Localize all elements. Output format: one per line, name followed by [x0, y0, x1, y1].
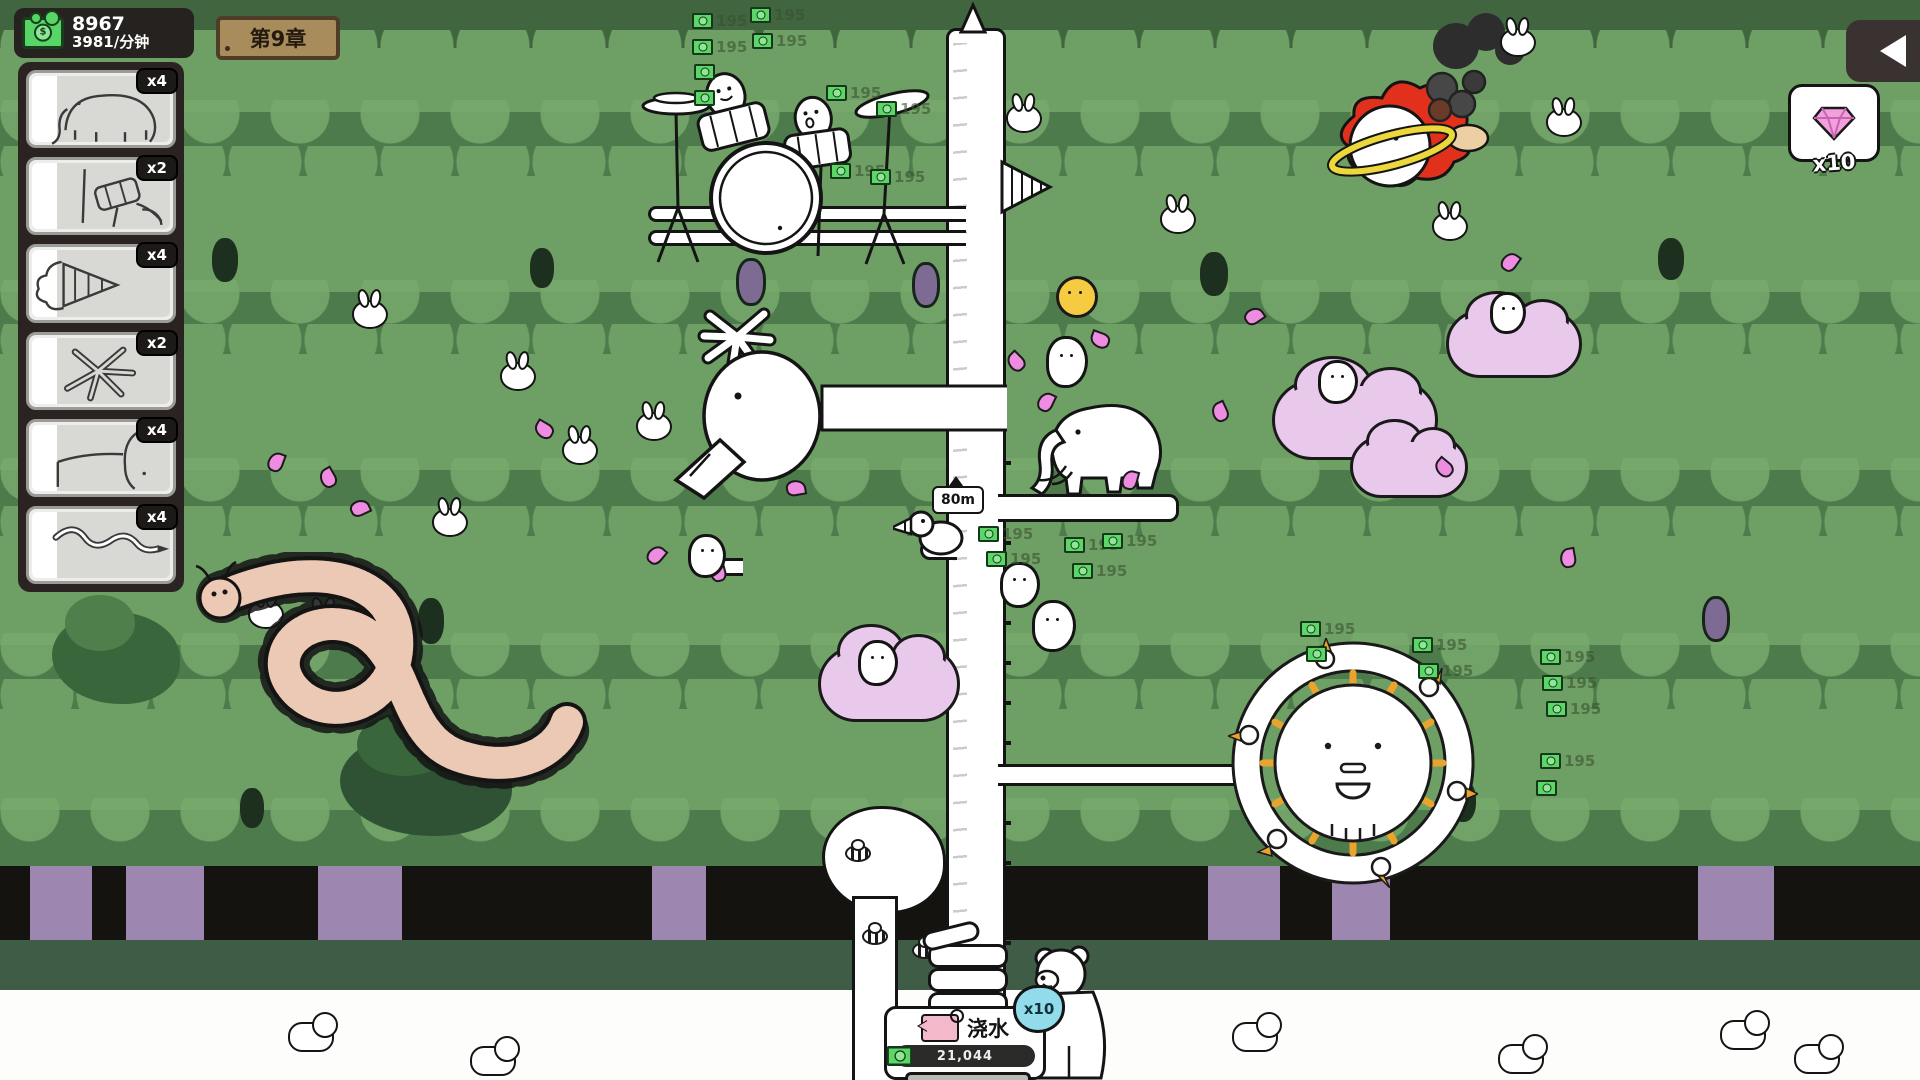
crawling-baby: [1720, 1020, 1766, 1050]
reward-value: 195: [1570, 700, 1601, 718]
reward-money: 195: [1418, 662, 1473, 680]
canopy-crevice: [212, 238, 238, 282]
money-bill-icon: [1412, 637, 1433, 653]
money-bill-icon: [1542, 675, 1563, 691]
unit-card-goose[interactable]: x4: [26, 419, 176, 497]
unit-card-mammoth[interactable]: x4: [26, 70, 176, 148]
small-sun: [1056, 276, 1098, 318]
reward-money: 195: [1102, 532, 1157, 550]
unit-count-badge: x2: [136, 155, 178, 181]
money-bill-icon: [692, 39, 713, 55]
tree-trunk: [30, 866, 92, 940]
rabbit: [1006, 104, 1042, 133]
tree-trunk: [652, 866, 706, 940]
reward-value: 195: [776, 32, 807, 50]
money-bill-icon: [1306, 646, 1327, 662]
chapter-label: 第9章: [250, 23, 307, 53]
money-bill-icon: [886, 1046, 912, 1066]
reward-money: 195: [752, 32, 807, 50]
money-bill-icon: [1546, 701, 1567, 717]
money-icon: [22, 17, 64, 49]
unit-card-worm[interactable]: x4: [26, 506, 176, 584]
unit-card-drums[interactable]: x2: [26, 157, 176, 235]
gem-panel[interactable]: x10: [1788, 84, 1880, 162]
watering-action-panel[interactable]: 浇水 21,044 x10: [884, 1006, 1046, 1080]
back-arrow-icon: [1864, 35, 1906, 67]
money-panel: 8967 3981/分钟: [14, 8, 194, 58]
reward-value: 195: [1002, 525, 1033, 543]
canopy-crevice: [530, 248, 554, 288]
hand-finger: [928, 968, 1008, 992]
burning-planet: [1322, 52, 1512, 212]
tree-trunk: [126, 866, 204, 940]
tree-trunk: [318, 866, 402, 940]
rabbit: [432, 508, 468, 537]
reward-value: 195: [1564, 752, 1595, 770]
reward-value: 195: [716, 38, 747, 56]
reward-money: 195: [986, 550, 1041, 568]
watering-can-icon: [921, 1014, 959, 1042]
reward-money: [694, 64, 715, 80]
reward-money: 195: [692, 38, 747, 56]
unit-card-splat[interactable]: x2: [26, 332, 176, 410]
gem-count: x10: [1812, 150, 1856, 177]
unit-count-badge: x2: [136, 330, 178, 356]
rabbit: [636, 412, 672, 441]
money-bill-icon: [692, 13, 713, 29]
money-bill-icon: [1536, 780, 1557, 796]
action-title: 浇水: [967, 1013, 1009, 1043]
reward-value: 195: [900, 100, 931, 118]
unit-count-badge: x4: [136, 242, 178, 268]
standing-blob: [1046, 336, 1088, 388]
reward-money: 195: [1412, 636, 1467, 654]
money-bill-icon: [876, 101, 897, 117]
reward-value: 195: [716, 12, 747, 30]
petal: [531, 418, 556, 442]
petal: [1498, 249, 1523, 275]
crawling-baby: [288, 1022, 334, 1052]
panel-stub: [905, 1072, 1031, 1080]
rabbit: [1432, 212, 1468, 241]
back-button[interactable]: [1846, 20, 1920, 82]
money-bill-icon: [978, 526, 999, 542]
rabbit: [562, 436, 598, 465]
reward-money: [1536, 780, 1557, 796]
wreath-branch: [998, 764, 1261, 786]
unit-count-badge: x4: [136, 68, 178, 94]
money-bill-icon: [826, 85, 847, 101]
bee: [862, 928, 888, 945]
reward-value: 195: [1010, 550, 1041, 568]
reward-value: 195: [1126, 532, 1157, 550]
trunk-glimpse: [1702, 596, 1730, 642]
money-bill-icon: [830, 163, 851, 179]
unit-count-badge: x4: [136, 417, 178, 443]
unit-card-drill[interactable]: x4: [26, 244, 176, 322]
reward-value: 195: [1324, 620, 1355, 638]
drill-attachment: [998, 150, 1056, 224]
canopy-crevice: [1658, 238, 1684, 280]
unit-count-badge: x4: [136, 504, 178, 530]
reward-money: 195: [1072, 562, 1127, 580]
money-bill-icon: [870, 169, 891, 185]
money-bill-icon: [1300, 621, 1321, 637]
climbing-blob: [1000, 562, 1040, 608]
money-bill-icon: [750, 7, 771, 23]
reward-value: 195: [1564, 648, 1595, 666]
money-bill-icon: [1102, 533, 1123, 549]
reward-money: 195: [1540, 752, 1595, 770]
petal: [1209, 400, 1232, 425]
money-rate: 3981/分钟: [72, 35, 149, 51]
drum-kit: [636, 56, 968, 266]
reward-value: 195: [774, 6, 805, 24]
reward-money: 195: [750, 6, 805, 24]
gem-icon: [1812, 105, 1856, 141]
height-marker: 80m: [932, 486, 984, 514]
reward-value: 195: [1436, 636, 1467, 654]
money-bill-icon: [1540, 753, 1561, 769]
reward-money: [1306, 646, 1327, 662]
bee: [845, 845, 871, 862]
action-progress-bar: 21,044: [895, 1045, 1035, 1067]
money-bill-icon: [752, 33, 773, 49]
rabbit: [1160, 205, 1196, 234]
reward-money: 195: [876, 100, 931, 118]
money-bill-icon: [694, 90, 715, 106]
reward-money: 195: [1542, 674, 1597, 692]
money-bill-icon: [1418, 663, 1439, 679]
money-bill-icon: [1540, 649, 1561, 665]
reward-money: 195: [978, 525, 1033, 543]
reward-money: 195: [1300, 620, 1355, 638]
unit-card-sidebar: x4 x2 x4: [18, 62, 184, 592]
crawling-baby: [1232, 1022, 1278, 1052]
chapter-sign: 第9章: [216, 16, 340, 60]
reward-value: 195: [894, 168, 925, 186]
rabbit: [352, 300, 388, 329]
reward-money: 195: [1540, 648, 1595, 666]
money-bill-icon: [986, 551, 1007, 567]
crawling-baby: [1498, 1044, 1544, 1074]
canopy-crevice: [1200, 252, 1228, 296]
height-marker-label: 80m: [941, 492, 975, 508]
reward-money: 195: [870, 168, 925, 186]
rabbit: [500, 362, 536, 391]
crawling-baby: [1794, 1044, 1840, 1074]
money-amount: 8967: [72, 15, 149, 35]
reward-value: 195: [1096, 562, 1127, 580]
centipede: [162, 552, 592, 832]
money-bill-icon: [694, 64, 715, 80]
petal: [1558, 547, 1577, 569]
tower-tip: [953, 2, 993, 34]
reward-money: [694, 90, 715, 106]
reward-value: 195: [1442, 662, 1473, 680]
money-bill-icon: [1064, 537, 1085, 553]
game-screen: 195 195 195 195 195 195 195 195 195 195 …: [0, 0, 1920, 1080]
tree-trunk: [1698, 866, 1774, 940]
reward-money: 195: [692, 12, 747, 30]
crawling-baby: [470, 1046, 516, 1076]
reward-money: 195: [1546, 700, 1601, 718]
reward-money: 195: [826, 84, 881, 102]
reward-value: 195: [1566, 674, 1597, 692]
trunk-glimpse: [912, 262, 940, 308]
action-progress-value: 21,044: [937, 1049, 993, 1064]
rabbit: [1546, 108, 1582, 137]
money-bill-icon: [1072, 563, 1093, 579]
